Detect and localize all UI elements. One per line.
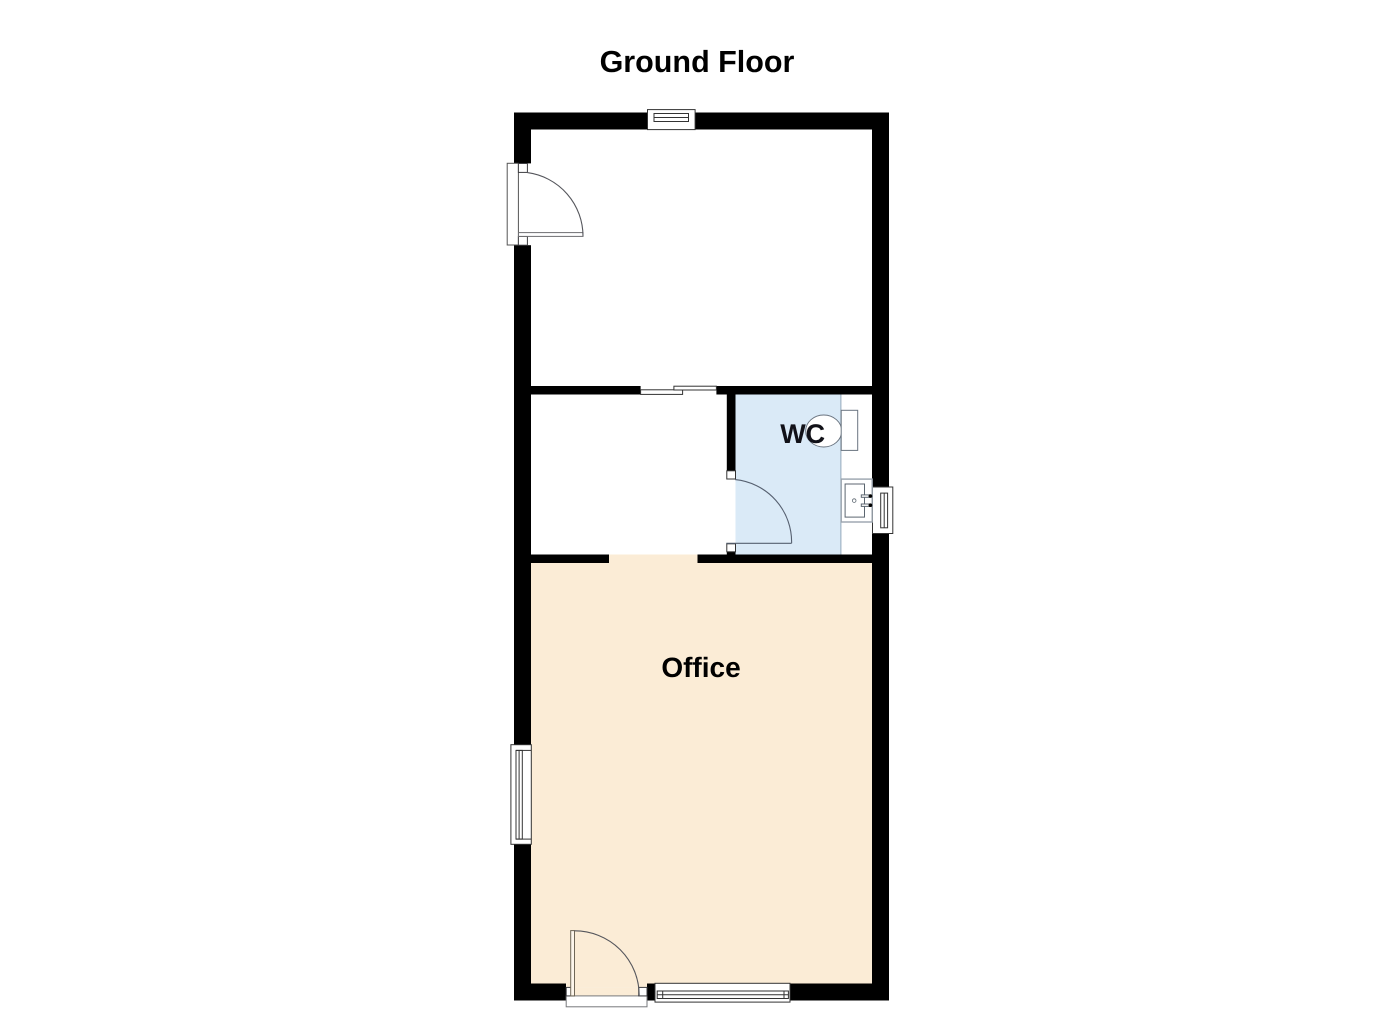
svg-text:Ground Floor: Ground Floor — [600, 45, 795, 79]
svg-text:WC: WC — [780, 419, 825, 449]
svg-text:Office: Office — [661, 652, 740, 683]
